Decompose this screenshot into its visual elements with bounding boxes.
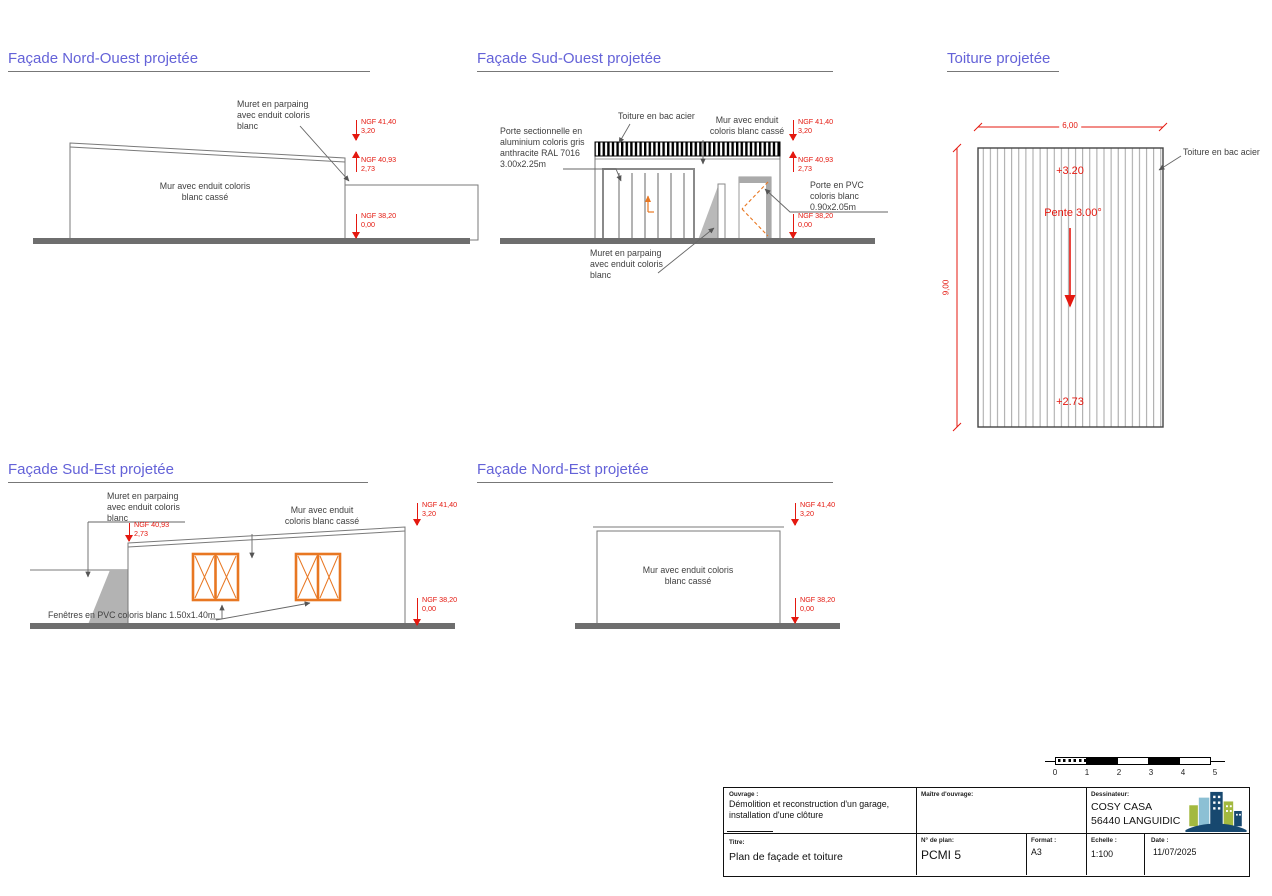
panel-title-sud-ouest: Façade Sud-Ouest projetée	[477, 50, 833, 72]
cell-divider	[1144, 833, 1145, 875]
ground-bar	[33, 238, 470, 244]
scale-segment	[1148, 757, 1180, 765]
muret-post	[718, 184, 725, 240]
scale-number: 2	[1117, 768, 1121, 777]
drawing-sheet: Façade Nord-Ouest projetée Façade Sud-Ou…	[0, 0, 1272, 896]
ouvrage-label: Ouvrage :	[729, 791, 758, 798]
mur-label: Mur avec enduit coloris blanc cassé	[706, 115, 788, 137]
level-bottom: +2.73	[1030, 396, 1110, 408]
ngf-marker-0-00: NGF 38,200,00	[793, 214, 794, 238]
dessinateur-label: Dessinateur:	[1091, 791, 1129, 798]
muret-label: Muret en parpaing avec enduit coloris bl…	[590, 248, 663, 281]
ngf-marker-3-20: NGF 41,403,20	[356, 120, 357, 140]
scale-segment	[1086, 757, 1118, 765]
scale-number: 0	[1053, 768, 1057, 777]
width-dimension: 6,00	[1059, 121, 1081, 130]
bac-acier-label: Toiture en bac acier	[1183, 147, 1260, 158]
height-dimension: 9,00	[941, 280, 950, 296]
scale-segment	[1117, 757, 1149, 765]
cell-divider	[1086, 833, 1087, 875]
cell-divider	[1026, 833, 1027, 875]
ngf-marker-3-20: NGF 41,403,20	[417, 503, 418, 525]
ground-bar	[30, 623, 455, 629]
scale-number: 1	[1085, 768, 1089, 777]
ngf-marker-0-00: NGF 38,200,00	[356, 214, 357, 238]
window-2	[296, 554, 340, 600]
format-label: Format :	[1031, 837, 1056, 844]
toiture-bac-acier-label: Toiture en bac acier	[618, 111, 695, 122]
ngf-marker-0-00: NGF 38,200,00	[795, 598, 796, 623]
echelle-value: 1:100	[1091, 849, 1113, 860]
panel-title-sud-est: Façade Sud-Est projetée	[8, 461, 368, 483]
date-value: 11/07/2025	[1153, 847, 1196, 858]
level-top: +3.20	[1030, 165, 1110, 177]
titre-label: Titre:	[729, 839, 745, 846]
slope-label: Pente 3.00°	[1033, 207, 1113, 219]
scale-segment	[1179, 757, 1211, 765]
ngf-marker-3-20: NGF 41,403,20	[793, 120, 794, 140]
plan-number-label: N° de plan:	[921, 837, 954, 844]
ngf-marker-2-73: NGF 40,932,73	[129, 523, 130, 541]
title-block: Ouvrage : Démolition et reconstruction d…	[723, 787, 1250, 877]
muret-label: Muret en parpaing avec enduit coloris bl…	[107, 491, 180, 524]
mur-label: Mur avec enduit coloris blanc cassé	[150, 181, 260, 203]
cell-divider	[916, 833, 917, 875]
ngf-marker-3-20: NGF 41,403,20	[795, 503, 796, 525]
porte-pvc-label: Porte en PVC coloris blanc 0.90x2.05m	[810, 180, 864, 213]
cell-divider	[1086, 788, 1087, 833]
maitre-ouvrage-label: Maître d'ouvrage:	[921, 791, 973, 798]
titre-value: Plan de façade et toiture	[729, 851, 843, 865]
ngf-marker-2-73: NGF 40,932,73	[793, 152, 794, 172]
fenetres-label: Fenêtres en PVC coloris blanc 1.50x1.40m	[48, 610, 215, 621]
panel-title-nord-ouest: Façade Nord-Ouest projetée	[8, 50, 370, 72]
bac-acier-band	[595, 142, 780, 156]
row-divider	[724, 833, 1249, 834]
pvc-door	[739, 177, 771, 240]
ngf-marker-2-73: NGF 40,932,73	[356, 152, 357, 172]
plan-number-value: PCMI 5	[921, 848, 961, 864]
dessinateur-city: 56440 LANGUIDIC	[1091, 815, 1180, 829]
scale-segment	[1055, 757, 1087, 765]
cell-divider	[916, 788, 917, 833]
porte-sectionnelle-label: Porte sectionnelle en aluminium coloris …	[500, 126, 585, 170]
dessinateur-name: COSY CASA	[1091, 801, 1152, 815]
window-1	[193, 554, 238, 600]
panel-title-toiture: Toiture projetée	[947, 50, 1059, 72]
scale-number: 5	[1213, 768, 1217, 777]
scale-number: 3	[1149, 768, 1153, 777]
ouvrage-value: Démolition et reconstruction d'un garage…	[729, 799, 889, 822]
format-value: A3	[1031, 847, 1042, 858]
scale-number: 4	[1181, 768, 1185, 777]
graphic-scale-bar: 0 1 2 3 4 5	[1045, 753, 1235, 781]
muret-label: Muret en parpaing avec enduit coloris bl…	[237, 99, 310, 132]
ground-bar	[575, 623, 840, 629]
signature-line	[727, 831, 773, 832]
dimension-height	[953, 144, 961, 431]
mur-label: Mur avec enduit coloris blanc cassé	[633, 565, 743, 587]
mur-label: Mur avec enduit coloris blanc cassé	[282, 505, 362, 527]
ground-bar	[500, 238, 875, 244]
echelle-label: Echelle :	[1091, 837, 1117, 844]
ngf-marker-0-00: NGF 38,200,00	[417, 598, 418, 625]
panel-title-nord-est: Façade Nord-Est projetée	[477, 461, 833, 483]
date-label: Date :	[1151, 837, 1169, 844]
company-logo-icon	[1184, 790, 1248, 832]
